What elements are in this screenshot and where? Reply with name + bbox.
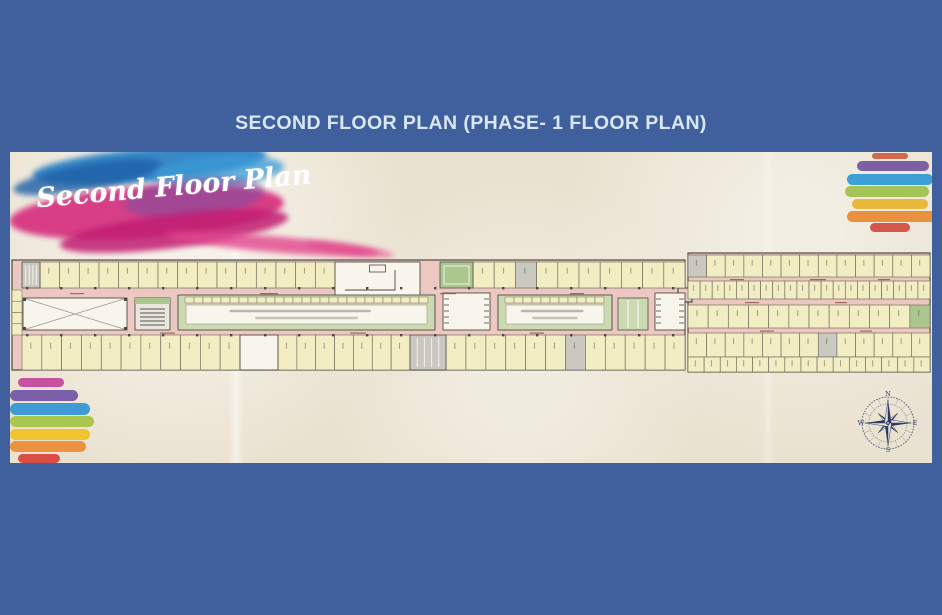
- compass-letter: N: [885, 390, 891, 398]
- compass-letter: W: [858, 419, 865, 427]
- page-title: SECOND FLOOR PLAN (PHASE- 1 FLOOR PLAN): [0, 112, 942, 135]
- compass-rose-icon: NESW: [856, 389, 920, 453]
- compass-letter: S: [886, 446, 890, 453]
- floor-plan-image: Second Floor Plan NESW: [10, 152, 932, 463]
- compass-letter: E: [913, 419, 918, 427]
